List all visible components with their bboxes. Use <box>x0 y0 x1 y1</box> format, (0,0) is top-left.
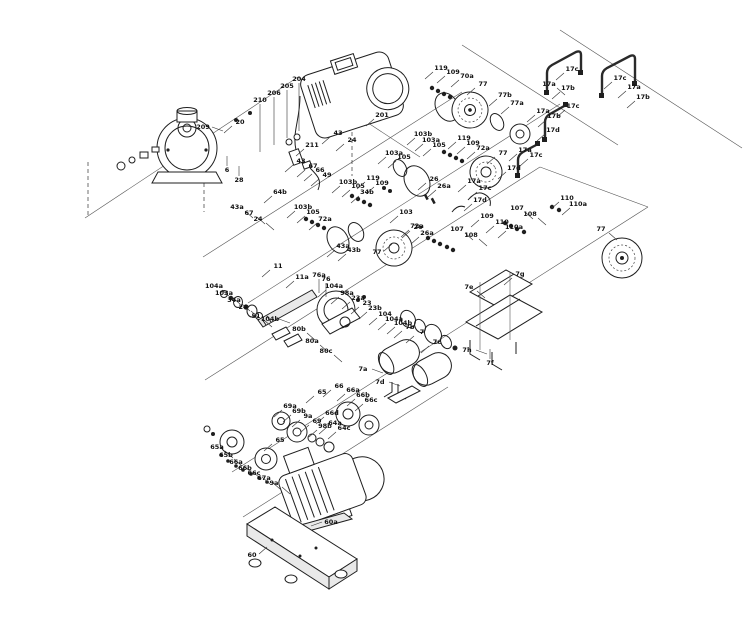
callout-leader <box>359 312 367 319</box>
callout-leader <box>224 126 232 133</box>
callout-label: 24 <box>347 136 357 144</box>
callout-leader <box>336 144 344 151</box>
callout-label: 65a <box>210 443 223 451</box>
callout-label: 110a <box>505 223 523 231</box>
callout-leader <box>282 487 290 494</box>
callout-leader <box>274 410 282 417</box>
callout-label: 105 <box>397 153 411 161</box>
callout-label: 17c <box>566 65 579 73</box>
callout-leader <box>467 152 475 159</box>
callout-leader <box>509 154 517 161</box>
callout-leader <box>351 307 359 314</box>
callout-leader <box>355 404 363 411</box>
callout-label: 7a <box>359 365 368 373</box>
callout-leader <box>332 186 340 193</box>
callout-leader <box>451 80 459 87</box>
callout-leader <box>479 239 487 246</box>
callout-leader <box>372 369 383 373</box>
callout-label: 77 <box>372 248 381 256</box>
callout-label: 108 <box>464 231 478 239</box>
callout-leader <box>537 134 545 141</box>
callout-leader <box>471 220 479 227</box>
callout-label: 6 <box>225 166 230 174</box>
callout-leader <box>520 159 528 166</box>
callout-label: 80b <box>292 325 306 333</box>
callout-leader <box>428 190 436 197</box>
callout-label: 17b <box>636 93 650 101</box>
callout-label: 109 <box>480 212 494 220</box>
callout-leader <box>390 216 398 223</box>
callout-leader <box>262 270 270 277</box>
callout-leader <box>476 350 487 354</box>
callout-label: 80a <box>305 337 318 345</box>
callout-leader <box>467 88 475 95</box>
callout-label: 7h <box>462 346 472 354</box>
callout-label: 64c <box>338 424 351 432</box>
callout-leader <box>384 244 392 251</box>
callout-label: 72a <box>318 215 331 223</box>
callout-leader <box>604 82 612 89</box>
callout-label: 24 <box>253 215 263 223</box>
callout-leader <box>264 444 272 451</box>
callout-label: 43 <box>333 129 342 137</box>
callout-label: 17c <box>614 74 627 82</box>
callout-leader <box>351 196 359 203</box>
callout-label: 204 <box>292 75 306 83</box>
callout-label: 103 <box>399 208 413 216</box>
callout-leader <box>415 144 423 151</box>
callout-leader <box>297 170 305 177</box>
callout-label: 49 <box>322 171 332 179</box>
callout-leader <box>283 415 291 422</box>
callout-label: 110a <box>569 200 587 208</box>
callout-label: 104b <box>261 315 280 323</box>
callout-leader <box>378 157 386 164</box>
callout-leader <box>538 120 546 127</box>
callout-leader <box>279 319 290 323</box>
callout-leader <box>334 355 342 362</box>
callout-overlay: 209202102062052042012116284367664964b43a… <box>0 0 752 632</box>
callout-leader <box>423 149 431 156</box>
callout-leader <box>342 302 350 309</box>
callout-leader <box>401 230 409 237</box>
callout-leader <box>425 72 433 79</box>
callout-leader <box>327 250 335 257</box>
callout-leader <box>421 346 429 353</box>
callout-leader <box>212 127 223 131</box>
callout-label: 60a <box>324 518 337 526</box>
callout-label: 109 <box>375 179 389 187</box>
callout-label: 77a <box>510 99 523 107</box>
callout-leader <box>309 223 317 230</box>
callout-label: 105 <box>432 141 446 149</box>
callout-label: 209 <box>196 123 210 131</box>
callout-leader <box>551 202 559 209</box>
callout-label: 17c <box>567 102 580 110</box>
callout-label: 9a <box>270 479 279 487</box>
callout-label: 17a <box>542 80 555 88</box>
callout-label: 7g <box>515 270 525 278</box>
callout-leader <box>394 331 402 338</box>
callout-label: 7d <box>375 378 385 386</box>
callout-leader <box>538 218 546 225</box>
callout-leader <box>498 172 506 179</box>
callout-label: 11a <box>295 273 308 281</box>
callout-leader <box>266 223 274 230</box>
callout-leader <box>406 336 414 343</box>
callout-label: 70a <box>460 72 473 80</box>
callout-label: 107 <box>450 225 464 233</box>
callout-leader <box>411 237 419 244</box>
diagram-stage: 209202102062052042012116284367664964b43a… <box>0 0 752 632</box>
callout-label: 17d <box>507 164 521 172</box>
callout-leader <box>407 138 415 145</box>
callout-label: 24 <box>238 303 248 311</box>
callout-leader <box>402 231 410 238</box>
callout-leader <box>389 382 400 386</box>
callout-label: 201 <box>375 111 389 119</box>
callout-leader <box>304 174 312 181</box>
callout-label: 72a <box>476 144 489 152</box>
callout-label: 28 <box>234 176 244 184</box>
callout-leader <box>287 211 295 218</box>
callout-leader <box>418 183 426 190</box>
callout-label: 17b <box>561 84 575 92</box>
callout-label: 7c <box>433 338 442 346</box>
callout-leader <box>337 394 345 401</box>
callout-leader <box>464 204 472 211</box>
callout-leader <box>504 278 512 285</box>
callout-leader <box>259 547 267 554</box>
callout-leader <box>627 101 635 108</box>
callout-leader <box>285 165 293 172</box>
callout-leader <box>286 281 294 288</box>
callout-label: 17a <box>627 83 640 91</box>
callout-label: 7f <box>486 359 494 367</box>
callout-label: 65 <box>275 436 285 444</box>
callout-leader <box>457 147 465 154</box>
callout-label: 77 <box>478 80 487 88</box>
callout-leader <box>527 115 535 122</box>
callout-leader <box>618 91 626 98</box>
callout-label: 51 <box>251 312 261 320</box>
callout-label: 67 <box>244 209 253 217</box>
callout-leader <box>366 119 374 126</box>
callout-leader <box>301 425 309 432</box>
callout-leader <box>322 137 330 144</box>
callout-leader <box>369 318 377 325</box>
callout-label: 11 <box>273 262 283 270</box>
callout-label: 211 <box>305 141 319 149</box>
callout-leader <box>388 161 396 168</box>
callout-label: 17c <box>530 151 543 159</box>
callout-label: 109 <box>446 68 460 76</box>
callout-label: 7b <box>405 323 415 331</box>
callout-leader <box>562 208 570 215</box>
callout-label: 43 <box>296 157 305 165</box>
callout-leader <box>387 327 395 334</box>
callout-leader <box>498 231 506 238</box>
callout-leader <box>311 179 319 186</box>
callout-leader <box>338 254 346 261</box>
callout-leader <box>347 399 355 406</box>
callout-leader <box>328 432 336 439</box>
callout-leader <box>486 226 494 233</box>
callout-leader <box>489 99 497 106</box>
callout-leader <box>501 107 509 114</box>
callout-leader <box>264 196 272 203</box>
callout-leader <box>458 185 466 192</box>
callout-leader <box>552 92 560 99</box>
callout-label: 66d <box>325 409 339 417</box>
callout-label: 7e <box>465 283 475 291</box>
callout-label: 107 <box>510 204 524 212</box>
callout-label: 77 <box>498 149 507 157</box>
callout-label: 34b <box>360 188 374 196</box>
callout-leader <box>306 396 314 403</box>
callout-label: 7 <box>420 328 425 336</box>
callout-label: 60 <box>247 551 257 559</box>
callout-leader <box>437 76 445 83</box>
callout-label: 77 <box>596 225 605 233</box>
callout-leader <box>296 149 304 156</box>
callout-label: 43a <box>230 203 243 211</box>
callout-label: 66 <box>334 382 344 390</box>
callout-leader <box>342 190 350 197</box>
callout-label: 26a <box>437 182 450 190</box>
callout-label: 210 <box>253 96 267 104</box>
callout-leader <box>609 233 617 240</box>
callout-leader <box>292 420 300 427</box>
callout-label: 64b <box>273 188 287 196</box>
callout-label: 17b <box>547 112 561 120</box>
callout-label: 66c <box>365 396 378 404</box>
callout-leader <box>487 157 495 164</box>
callout-label: 9a <box>304 412 313 420</box>
callout-leader <box>297 216 305 223</box>
callout-label: 20 <box>235 118 245 126</box>
callout-label: 77b <box>498 91 512 99</box>
callout-label: 80c <box>320 347 333 355</box>
callout-label: 17c <box>479 184 492 192</box>
callout-leader <box>448 142 456 149</box>
callout-label: 43b <box>347 246 361 254</box>
callout-leader <box>477 291 485 298</box>
callout-label: 205 <box>280 82 294 90</box>
callout-label: 17d <box>473 196 487 204</box>
callout-leader <box>331 297 339 304</box>
callout-label: 17d <box>546 126 560 134</box>
callout-leader <box>311 522 322 526</box>
callout-leader <box>309 430 317 437</box>
callout-label: 26a <box>420 229 433 237</box>
callout-label: 108 <box>523 210 537 218</box>
callout-label: 206 <box>267 89 281 97</box>
callout-leader <box>556 73 564 80</box>
callout-leader <box>378 323 386 330</box>
